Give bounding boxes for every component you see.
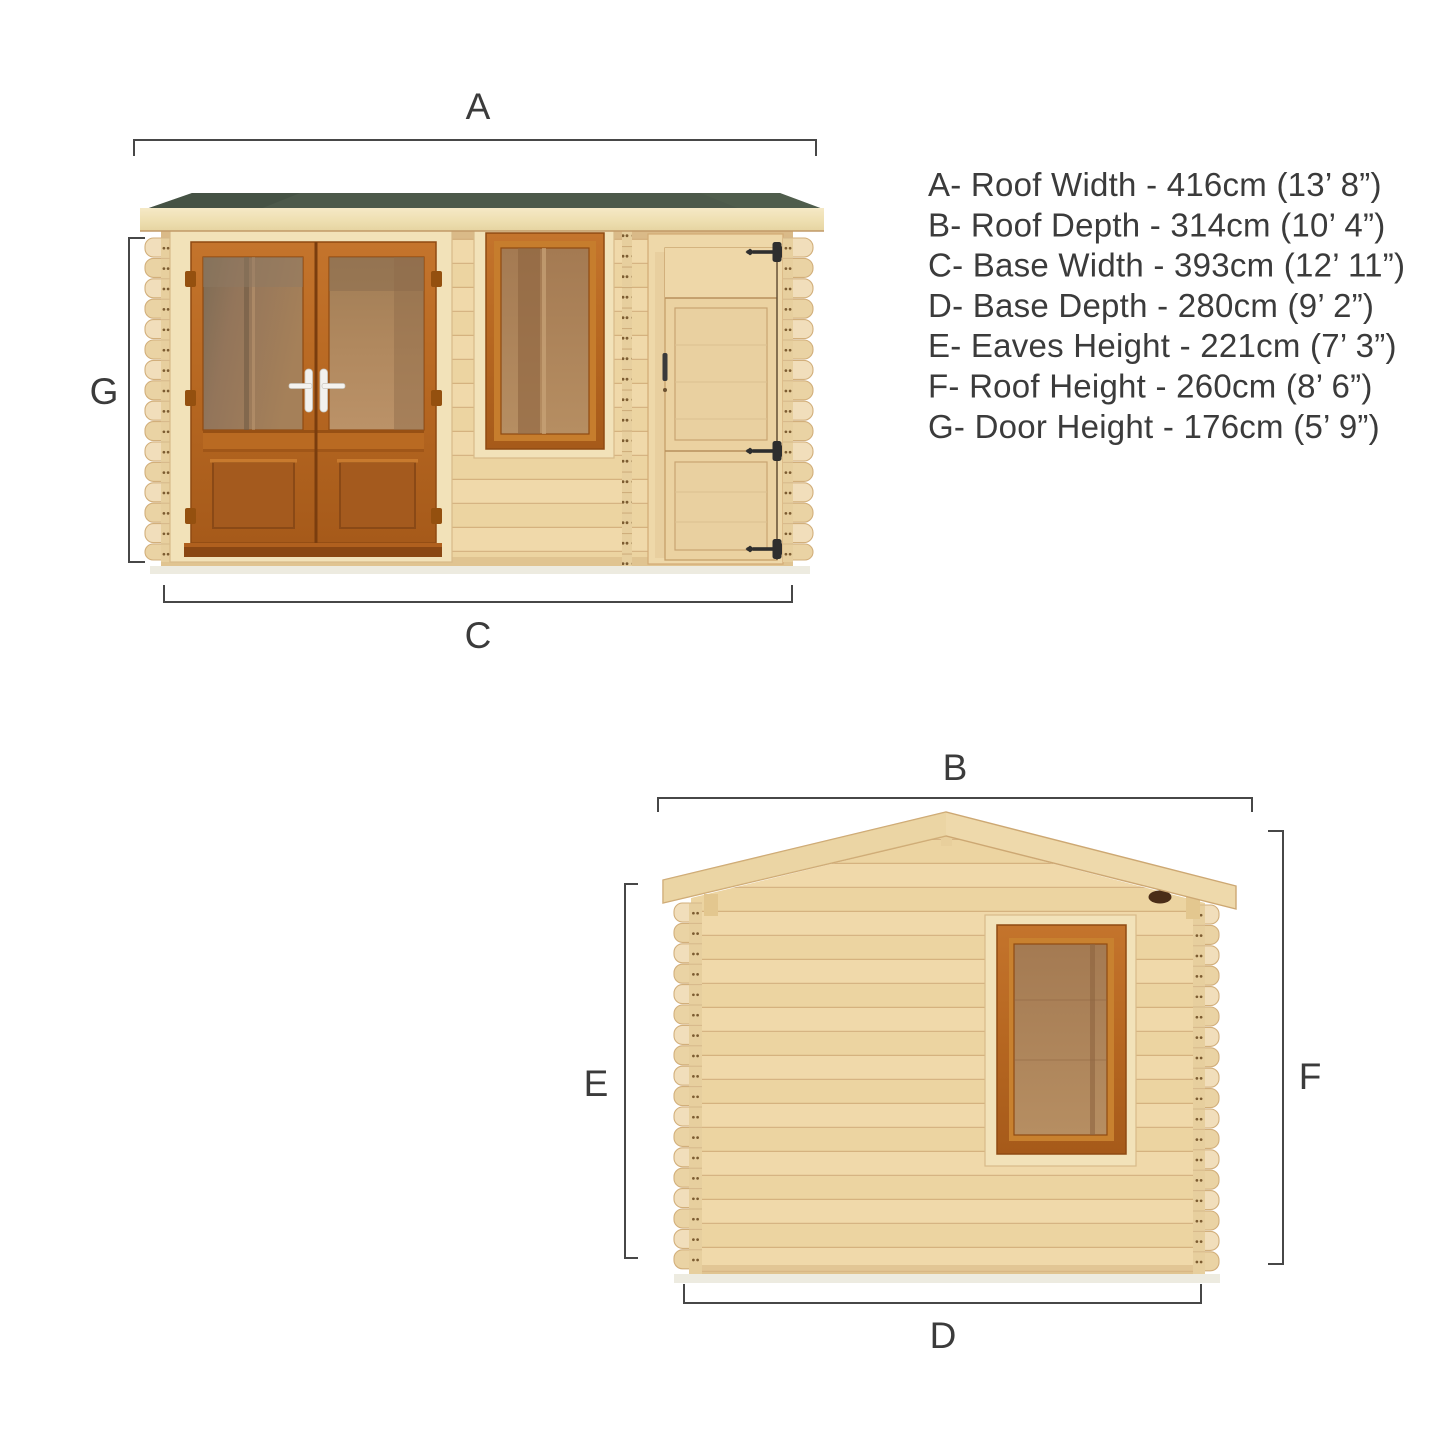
svg-text:E- Eaves Height - 221cm (7’ 3”: E- Eaves Height - 221cm (7’ 3”) <box>928 327 1397 364</box>
svg-text:C: C <box>465 615 492 656</box>
svg-text:D- Base Depth - 280cm (9’ 2”): D- Base Depth - 280cm (9’ 2”) <box>928 287 1374 324</box>
svg-text:B- Roof Depth - 314cm (10’ 4”): B- Roof Depth - 314cm (10’ 4”) <box>928 206 1385 243</box>
svg-text:F- Roof Height - 260cm (8’ 6”): F- Roof Height - 260cm (8’ 6”) <box>928 368 1373 405</box>
svg-text:G- Door Height - 176cm (5’ 9”): G- Door Height - 176cm (5’ 9”) <box>928 408 1380 445</box>
svg-text:F: F <box>1299 1056 1322 1097</box>
svg-text:G: G <box>90 371 119 412</box>
svg-text:A- Roof Width - 416cm (13’ 8”): A- Roof Width - 416cm (13’ 8”) <box>928 166 1382 203</box>
svg-text:B: B <box>943 747 968 788</box>
svg-text:C- Base Width - 393cm (12’ 11”: C- Base Width - 393cm (12’ 11”) <box>928 247 1405 284</box>
svg-text:A: A <box>466 86 491 127</box>
svg-text:E: E <box>584 1063 609 1104</box>
svg-text:D: D <box>930 1315 957 1356</box>
